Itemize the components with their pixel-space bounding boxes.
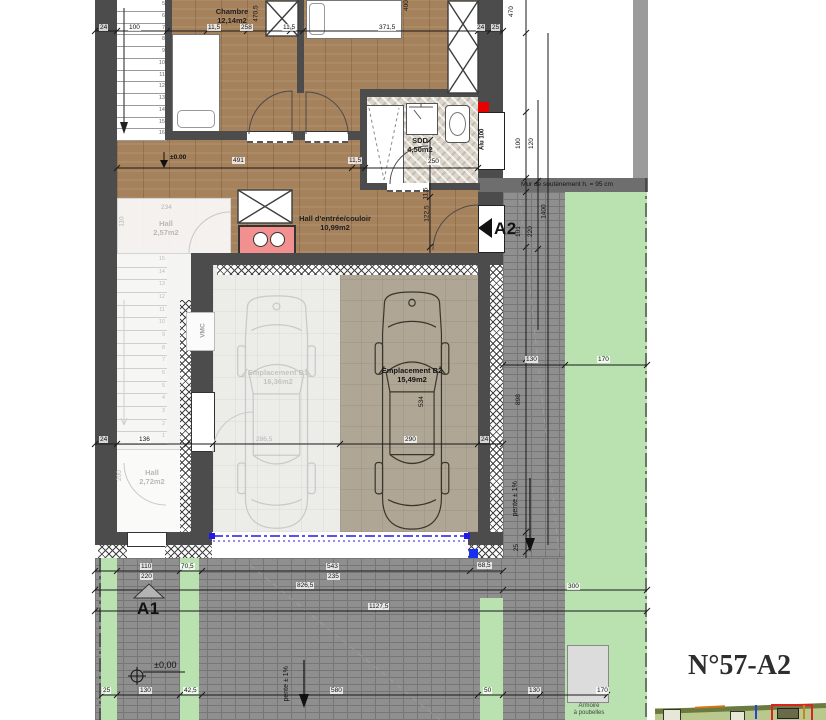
stair-step: 9 (117, 331, 167, 344)
dim: 24 (99, 24, 108, 31)
garage-door-opening (212, 532, 468, 545)
stair-step: 7 (117, 24, 167, 36)
dim: 534 (418, 395, 425, 408)
retaining-wall-text: Mur de soutènement h. = 95 cm (520, 181, 614, 188)
pier-hatched-1 (98, 545, 127, 558)
dim: 491 (232, 157, 245, 164)
window-label: Alu 100 (479, 128, 486, 151)
dim: 120 (528, 137, 535, 150)
level-entry-text: ±0.00 (169, 154, 187, 161)
stair-step: 5 (117, 382, 167, 395)
stair-step: 15 (117, 118, 167, 130)
dim: 11,5 (348, 157, 362, 164)
marker-a2: A2 (494, 219, 517, 239)
parking-b1-floor (213, 265, 340, 532)
marker-a1: A1 (137, 599, 160, 619)
dim: 25 (102, 687, 111, 694)
stair-step: 5 (117, 0, 167, 12)
stair-step: 9 (117, 47, 167, 59)
dim: 1400 (541, 203, 548, 219)
dim: 371,5 (378, 24, 396, 31)
dim: 170 (597, 356, 610, 363)
dim: 898 (515, 393, 522, 406)
dim: 68,5 (477, 562, 492, 569)
label-parking-b2: Emplacement B215,49m2 (371, 366, 453, 385)
shaft-pipe-1 (253, 232, 268, 247)
dim: 543 (326, 563, 339, 570)
dim: 130 (139, 687, 152, 694)
stair-step: 3 (117, 407, 167, 420)
dim: 234 (160, 204, 173, 211)
floor-plan: 5678910111213141516 15141312111098765432… (0, 0, 826, 720)
dim: 24 (480, 436, 489, 443)
staircase-lower-faded: 151413121110987654321 (117, 255, 167, 445)
vmc-label: VMC (200, 322, 207, 338)
wall-sdd-north (360, 89, 480, 97)
stair-step: 10 (117, 318, 167, 331)
stair-step: 12 (117, 82, 167, 94)
stair-step: 2 (117, 420, 167, 433)
insulation-garage-east (490, 265, 503, 532)
label-hall-257: Hall2,57m2 (138, 219, 194, 238)
dim: 400 (403, 0, 410, 12)
staircase-upper: 5678910111213141516 (117, 0, 168, 141)
stair-step: 8 (117, 35, 167, 47)
grass-strip-mid (180, 558, 199, 720)
wall-rooms-divider (297, 0, 304, 93)
stair-step: 12 (117, 293, 167, 306)
dim: 258 (240, 24, 253, 31)
grass-right (565, 192, 647, 720)
stair-step: 6 (117, 12, 167, 24)
label-parking-b1: Emplacement B116,36m2 (237, 368, 319, 387)
stair-step: 13 (117, 94, 167, 106)
wall-top-chain (95, 0, 117, 3)
dim: 110 (119, 215, 126, 227)
slope-drive-text: pente ± 1% (283, 665, 291, 702)
dim: 11,5 (423, 186, 430, 200)
stair-step: 11 (117, 306, 167, 319)
dim: 11,5 (282, 24, 296, 31)
red-marker (478, 102, 489, 112)
dim: 130 (525, 356, 538, 363)
grass-strip-left (101, 558, 117, 720)
stair-step: 4 (117, 394, 167, 407)
stair-step: 14 (117, 106, 167, 118)
dim: 24 (99, 436, 108, 443)
dim: 200 (116, 469, 123, 482)
label-hall-entree: Hall d'entrée/couloir10,99m2 (288, 214, 382, 233)
level-drive-text: ±0,00 (153, 661, 177, 671)
grass-strip-right (480, 598, 503, 720)
neighbor-wall (633, 0, 648, 178)
dim: 220 (527, 225, 534, 238)
dim: 100 (515, 137, 522, 150)
bins-label: Armoireà poubelles (566, 703, 612, 716)
dim: 250 (427, 158, 440, 165)
door-gap-south-hall (127, 532, 167, 547)
pier-hatched-2 (165, 545, 212, 558)
dim: 1127,5 (368, 603, 389, 610)
insulation-garage-top (217, 265, 478, 275)
door-gap-chambre (247, 131, 293, 143)
stair-step: 6 (117, 369, 167, 382)
bin-cabinet (567, 645, 609, 703)
dim: 101 (515, 225, 522, 238)
door-gap-garage-hall (191, 392, 215, 452)
stair-step: 10 (117, 59, 167, 71)
wall-left-exterior (95, 0, 117, 532)
pier-hatched-3 (468, 545, 503, 558)
bed-chambre-pillow (177, 110, 215, 128)
bed-room2-pillow (309, 3, 325, 35)
door-gap-room2 (305, 131, 348, 143)
dim: 300 (567, 583, 580, 590)
dim: 826,5 (296, 582, 314, 589)
washbasin (406, 103, 438, 135)
sheet-title: N°57-A2 (688, 650, 791, 682)
dim: 470 (508, 5, 515, 18)
label-sdd: SDD4,50m2 (392, 136, 448, 155)
dim: 25 (491, 24, 500, 31)
site-plan-thumbnail (655, 700, 826, 720)
dim: 220 (140, 573, 153, 580)
label-hall-272: Hall2,72m2 (124, 468, 180, 487)
dim: 130 (528, 687, 541, 694)
dim: 290 (404, 436, 417, 443)
stair-step: 8 (117, 344, 167, 357)
wall-chambre-left (165, 0, 172, 135)
dim: 170 (596, 687, 609, 694)
sink-bowl (449, 112, 466, 136)
stair-step: 16 (117, 129, 167, 141)
dim: 42,5 (183, 687, 198, 694)
dim: 580 (330, 687, 343, 694)
dim: 25 (513, 543, 520, 552)
stair-step: 14 (117, 268, 167, 281)
dim: 110 (140, 563, 152, 570)
shaft-pipe-2 (270, 232, 285, 247)
dim: 286,5 (255, 436, 273, 443)
slope-side-text: pente ± 1% (512, 480, 520, 517)
dim: 11,5 (207, 24, 221, 31)
dim: 136 (138, 436, 151, 443)
parking-b2-floor (340, 265, 480, 532)
dim: 235 (327, 573, 340, 580)
dim: 470,5 (253, 4, 260, 22)
wall-garage-top (191, 253, 503, 265)
stair-step: 15 (117, 255, 167, 268)
dim: 100 (128, 24, 141, 31)
room-hall-272-faded (117, 450, 187, 532)
dim: 122,5 (424, 204, 431, 222)
wall-sdd-west (360, 89, 367, 190)
dim: 24 (476, 24, 485, 31)
vmc-unit: VMC (186, 312, 215, 351)
dim: 50 (483, 687, 492, 694)
stair-step: 13 (117, 280, 167, 293)
stair-step: 11 (117, 71, 167, 83)
dim: 70,5 (180, 563, 195, 570)
stair-step: 7 (117, 356, 167, 369)
